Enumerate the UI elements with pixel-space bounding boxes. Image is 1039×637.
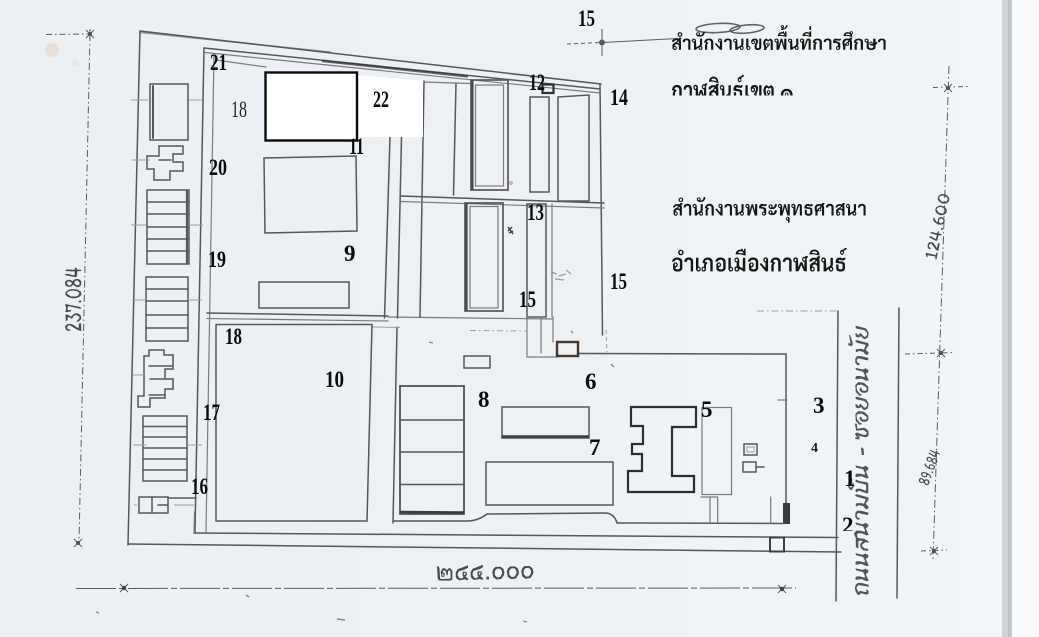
svg-text:18: 18 xyxy=(225,324,242,349)
svg-text:15: 15 xyxy=(578,6,595,31)
svg-text:13: 13 xyxy=(527,200,544,225)
svg-text:20: 20 xyxy=(209,155,227,180)
svg-text:5: 5 xyxy=(701,397,713,422)
svg-text:21: 21 xyxy=(210,50,227,75)
svg-text:16: 16 xyxy=(191,474,208,499)
svg-text:3: 3 xyxy=(813,393,825,418)
svg-text:6: 6 xyxy=(585,369,597,394)
svg-text:9: 9 xyxy=(344,241,356,266)
svg-text:17: 17 xyxy=(203,400,220,425)
svg-text:4: 4 xyxy=(811,441,818,456)
svg-text:11: 11 xyxy=(349,134,364,159)
svg-text:15: 15 xyxy=(519,287,536,312)
svg-text:19: 19 xyxy=(208,247,226,272)
svg-text:14: 14 xyxy=(610,85,628,110)
svg-text:15: 15 xyxy=(610,269,627,294)
svg-text:10: 10 xyxy=(325,367,344,392)
svg-text:18: 18 xyxy=(231,97,247,122)
svg-text:8: 8 xyxy=(478,387,490,412)
svg-text:22: 22 xyxy=(373,87,389,112)
svg-text:12: 12 xyxy=(529,70,545,95)
svg-text:7: 7 xyxy=(589,435,601,460)
svg-text:1: 1 xyxy=(844,466,856,491)
